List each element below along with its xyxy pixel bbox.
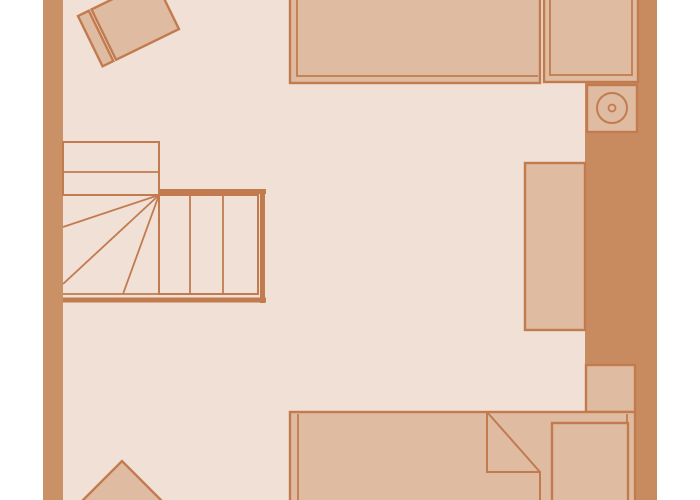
ceiling-lamp-icon xyxy=(587,85,637,132)
left-wall xyxy=(43,0,63,500)
floor-plan xyxy=(0,0,700,500)
wardrobe-icon xyxy=(525,163,585,330)
nightstand-icon xyxy=(544,0,638,82)
pillow-icon xyxy=(552,423,628,500)
side-table-icon xyxy=(586,365,635,412)
bed-bottom-icon xyxy=(290,412,635,500)
bed-top-outline xyxy=(290,0,540,83)
bed-top-icon xyxy=(290,0,540,83)
nightstand-outline xyxy=(544,0,638,82)
floor-plan-canvas xyxy=(0,0,700,500)
